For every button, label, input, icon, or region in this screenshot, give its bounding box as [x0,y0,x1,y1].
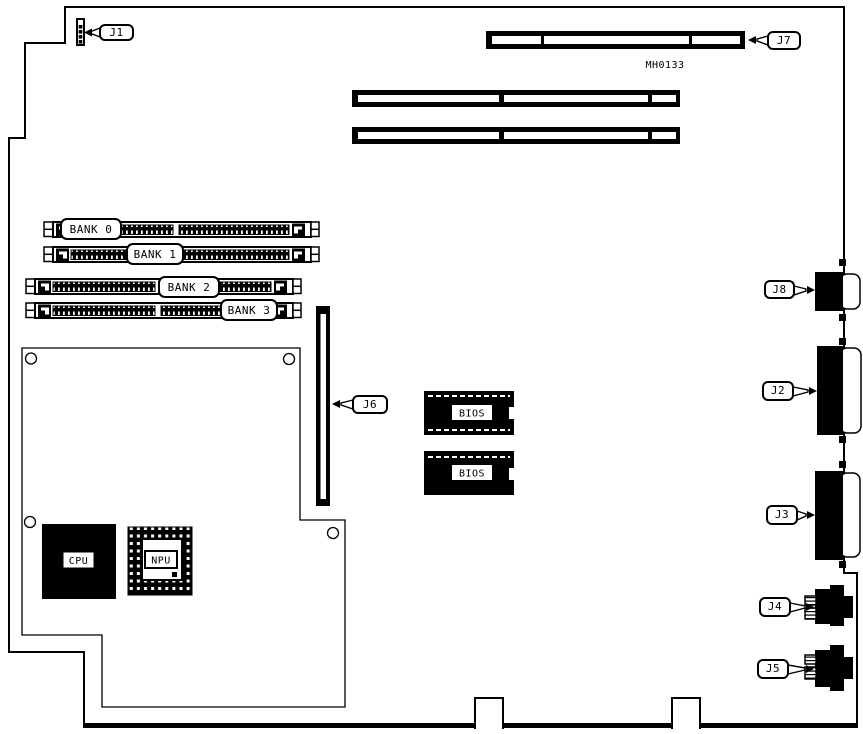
j4-label-text: J4 [768,600,782,613]
bank1-label: BANK 1 [127,244,183,264]
board-outline [9,7,857,724]
callout-j2: J2 [763,382,817,400]
expansion-slot-2 [352,127,680,144]
mounting-hole [284,354,295,365]
expansion-slot-1 [352,90,680,107]
port-j2 [817,346,861,435]
slot-j7 [486,31,745,49]
callout-j1: J1 [84,25,133,40]
j5-label-text: J5 [766,662,780,675]
bios1-label-text: BIOS [459,409,485,420]
bank3-label-text: BANK 3 [228,304,271,317]
bank1-label-text: BANK 1 [134,248,177,261]
slot-j6 [316,306,330,506]
mounting-hole [328,528,339,539]
connector-j1 [77,19,84,45]
callout-j3: J3 [767,506,815,524]
board-bottom-edge [83,724,858,728]
mounting-hole [26,353,37,364]
board-notch-left [475,698,503,729]
port-j3 [815,471,860,560]
bank2-label-text: BANK 2 [168,281,211,294]
part-number: MH0133 [645,60,684,71]
j7-label-text: J7 [777,34,791,47]
motherboard-diagram: MH0133 BANK 0 BANK 1 BANK 2 BANK 3 [0,0,863,734]
bank0-label: BANK 0 [61,219,121,239]
j8-label-text: J8 [772,283,786,296]
j3-label-text: J3 [775,508,789,521]
bank3-label: BANK 3 [221,300,277,320]
j6-label-text: J6 [363,398,377,411]
mounting-hole [25,517,36,528]
bios-chip-1: BIOS [424,391,514,435]
callout-j8: J8 [765,281,815,298]
npu-socket: NPU [128,527,192,595]
bios2-label-text: BIOS [459,469,485,480]
npu-label-text: NPU [151,556,171,567]
cpu-chip: CPU [42,524,116,599]
board-notch-right [672,698,700,729]
cpu-label-text: CPU [69,556,89,567]
port-j5 [805,645,853,691]
port-j8 [815,272,860,311]
j2-label-text: J2 [771,384,785,397]
bank0-label-text: BANK 0 [70,223,113,236]
callout-j7: J7 [748,32,800,49]
diagram-svg: MH0133 BANK 0 BANK 1 BANK 2 BANK 3 [0,0,863,734]
port-j4 [805,585,853,626]
bios-chip-2: BIOS [424,451,514,495]
j1-label-text: J1 [109,26,123,39]
callout-j6: J6 [332,396,387,413]
bank2-label: BANK 2 [159,277,219,297]
